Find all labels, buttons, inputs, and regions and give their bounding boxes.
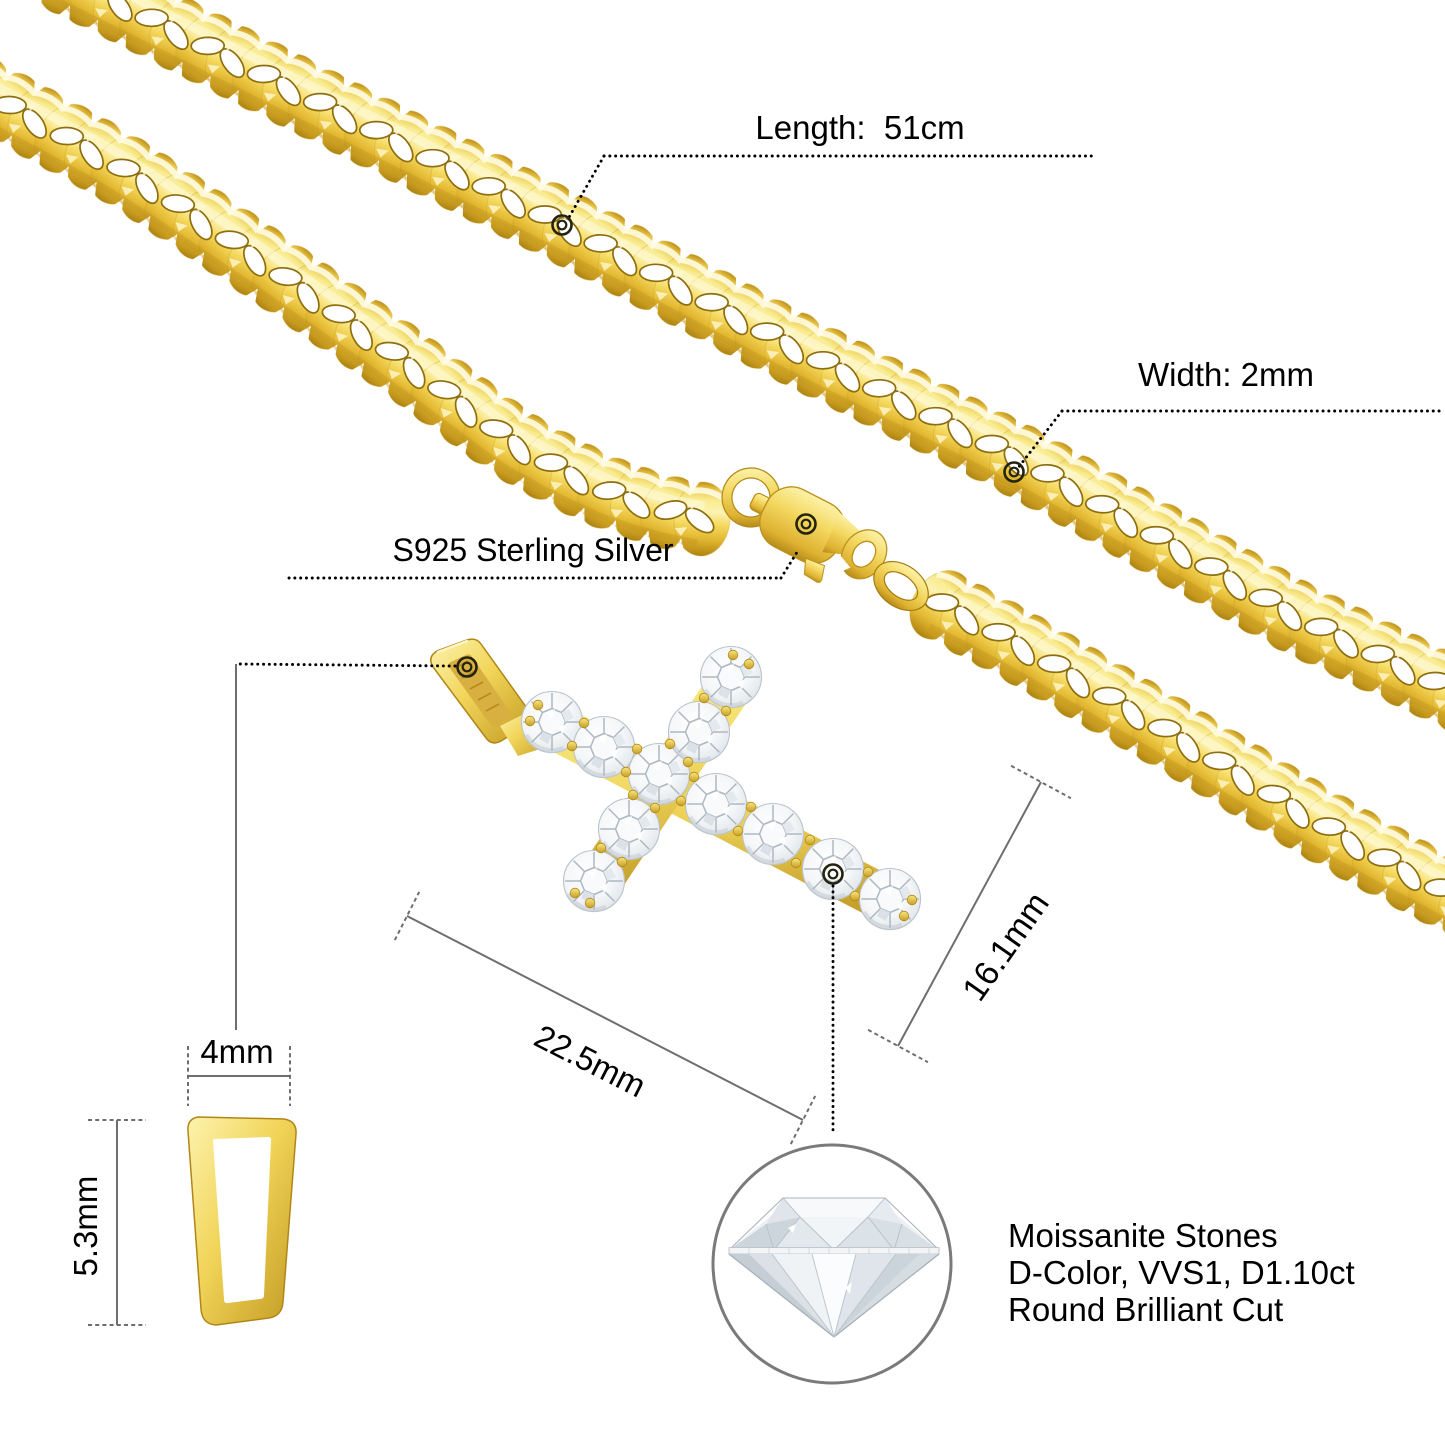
svg-text:Length: 51cm: Length: 51cm <box>755 109 964 146</box>
svg-text:4mm: 4mm <box>200 1033 273 1070</box>
svg-text:Moissanite Stones: Moissanite Stones <box>1008 1217 1278 1254</box>
svg-text:Round Brilliant Cut: Round Brilliant Cut <box>1008 1291 1283 1328</box>
svg-text:5.3mm: 5.3mm <box>67 1176 104 1277</box>
svg-text:Width: 2mm: Width: 2mm <box>1138 356 1314 393</box>
svg-text:S925 Sterling Silver: S925 Sterling Silver <box>392 532 673 568</box>
svg-text:D-Color, VVS1, D1.10ct: D-Color, VVS1, D1.10ct <box>1008 1254 1355 1291</box>
